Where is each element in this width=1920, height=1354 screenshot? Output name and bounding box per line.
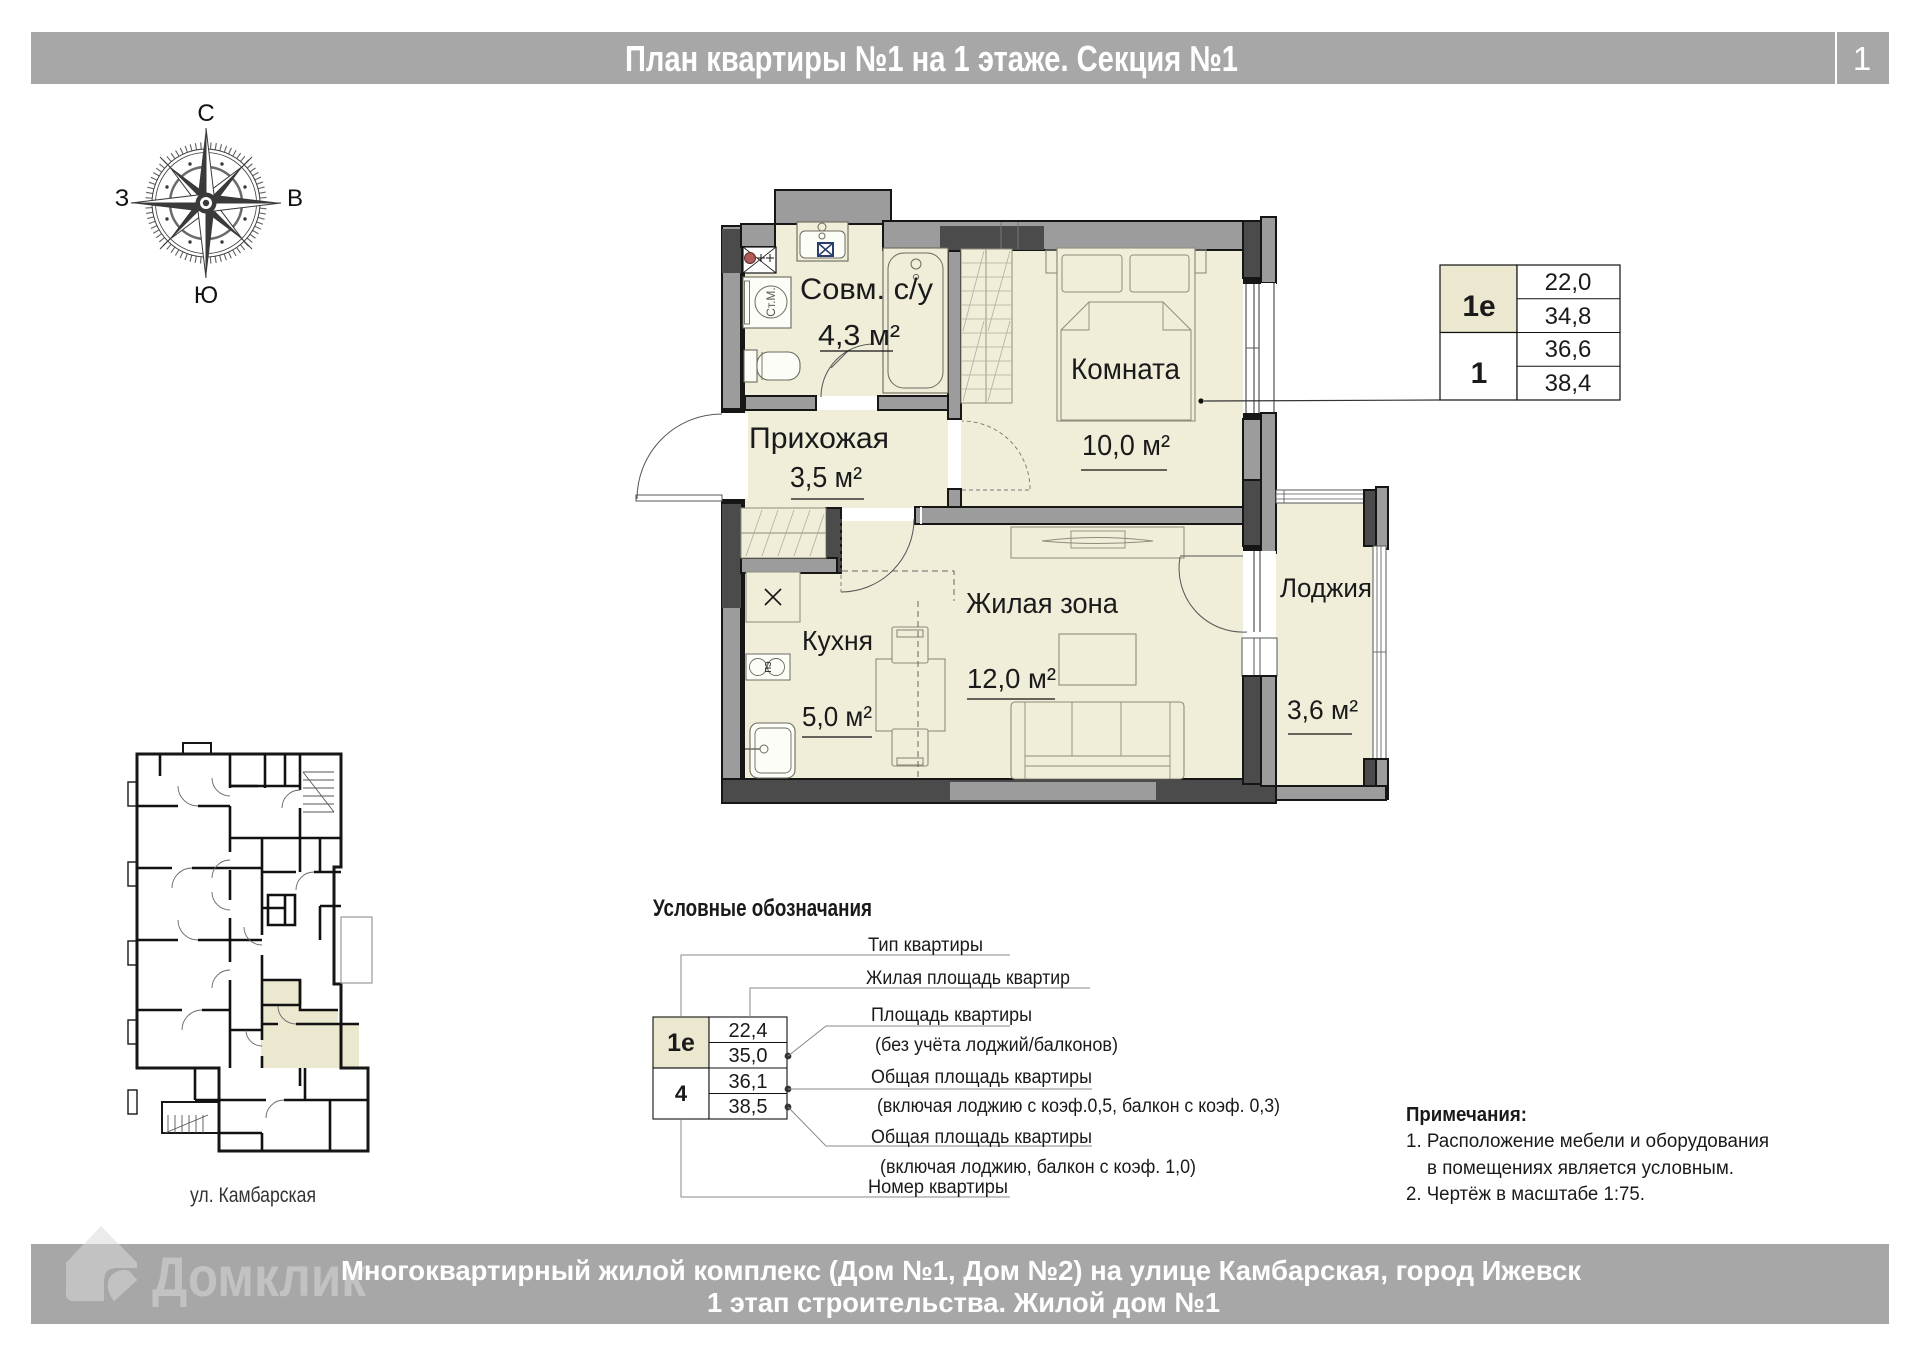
svg-text:22,4: 22,4 — [729, 1020, 768, 1042]
svg-text:С: С — [197, 100, 214, 127]
svg-text:В: В — [287, 185, 303, 212]
svg-text:35,0: 35,0 — [729, 1045, 768, 1067]
svg-text:Прихожая: Прихожая — [749, 422, 889, 455]
svg-text:Номер квартиры: Номер квартиры — [868, 1177, 1008, 1198]
svg-text:5,0 м²: 5,0 м² — [802, 701, 872, 732]
svg-text:4: 4 — [675, 1081, 688, 1106]
svg-text:1е: 1е — [1462, 290, 1495, 323]
svg-text:1 этап строительства. Жилой до: 1 этап строительства. Жилой дом №1 — [707, 1287, 1220, 1318]
svg-text:Ю: Ю — [194, 282, 218, 309]
svg-text:38,5: 38,5 — [729, 1096, 768, 1118]
svg-text:4,3 м²: 4,3 м² — [818, 320, 900, 352]
svg-text:Общая площадь квартиры: Общая площадь квартиры — [871, 1067, 1092, 1088]
svg-text:3,5 м²: 3,5 м² — [790, 462, 862, 494]
svg-text:Домклик: Домклик — [152, 1245, 367, 1308]
svg-text:в помещениях является условным: в помещениях является условным. — [1427, 1158, 1734, 1179]
svg-text:2. Чертёж в масштабе 1:75.: 2. Чертёж в масштабе 1:75. — [1406, 1184, 1645, 1205]
svg-text:22,0: 22,0 — [1545, 269, 1592, 296]
svg-text:Жилая площадь квартир: Жилая площадь квартир — [866, 968, 1070, 989]
svg-text:ул. Камбарская: ул. Камбарская — [190, 1184, 316, 1207]
svg-text:Тип квартиры: Тип квартиры — [868, 935, 983, 956]
svg-text:Площадь квартиры: Площадь квартиры — [871, 1005, 1032, 1026]
svg-text:Комната: Комната — [1071, 353, 1180, 386]
svg-text:План квартиры №1 на 1 этаже. С: План квартиры №1 на 1 этаже. Секция №1 — [625, 38, 1238, 79]
svg-text:(включая лоджию, балкон с коэф: (включая лоджию, балкон с коэф. 1,0) — [880, 1157, 1196, 1178]
svg-text:12,0 м²: 12,0 м² — [967, 663, 1056, 694]
svg-text:10,0 м²: 10,0 м² — [1082, 430, 1170, 462]
svg-text:З: З — [115, 185, 130, 212]
svg-text:Многоквартирный жилой комплекс: Многоквартирный жилой комплекс (Дом №1, … — [341, 1255, 1582, 1286]
svg-text:3,6 м²: 3,6 м² — [1287, 695, 1358, 725]
svg-text:(без учёта лоджий/балконов): (без учёта лоджий/балконов) — [875, 1035, 1118, 1056]
svg-text:38,4: 38,4 — [1545, 370, 1592, 397]
svg-text:пэ: пэ — [762, 661, 774, 673]
svg-text:1е: 1е — [667, 1029, 695, 1057]
svg-text:36,1: 36,1 — [729, 1071, 768, 1093]
svg-text:1: 1 — [1471, 357, 1488, 390]
svg-text:Совм. с/у: Совм. с/у — [800, 273, 933, 306]
svg-text:Лоджия: Лоджия — [1280, 573, 1372, 603]
svg-text:Общая площадь квартиры: Общая площадь квартиры — [871, 1127, 1092, 1148]
svg-text:Примечания:: Примечания: — [1406, 1104, 1527, 1126]
svg-text:34,8: 34,8 — [1545, 303, 1592, 330]
svg-text:1: 1 — [1853, 40, 1871, 77]
svg-text:(включая лоджию с коэф.0,5, ба: (включая лоджию с коэф.0,5, балкон с коэ… — [877, 1096, 1280, 1117]
svg-text:36,6: 36,6 — [1545, 336, 1592, 363]
svg-text:Ст.М.: Ст.М. — [764, 287, 778, 317]
svg-text:Жилая зона: Жилая зона — [966, 588, 1119, 620]
svg-text:Кухня: Кухня — [802, 625, 873, 656]
svg-text:Условные обозначания: Условные обозначания — [653, 895, 872, 922]
svg-text:1. Расположение мебели и обору: 1. Расположение мебели и оборудования — [1406, 1131, 1769, 1152]
